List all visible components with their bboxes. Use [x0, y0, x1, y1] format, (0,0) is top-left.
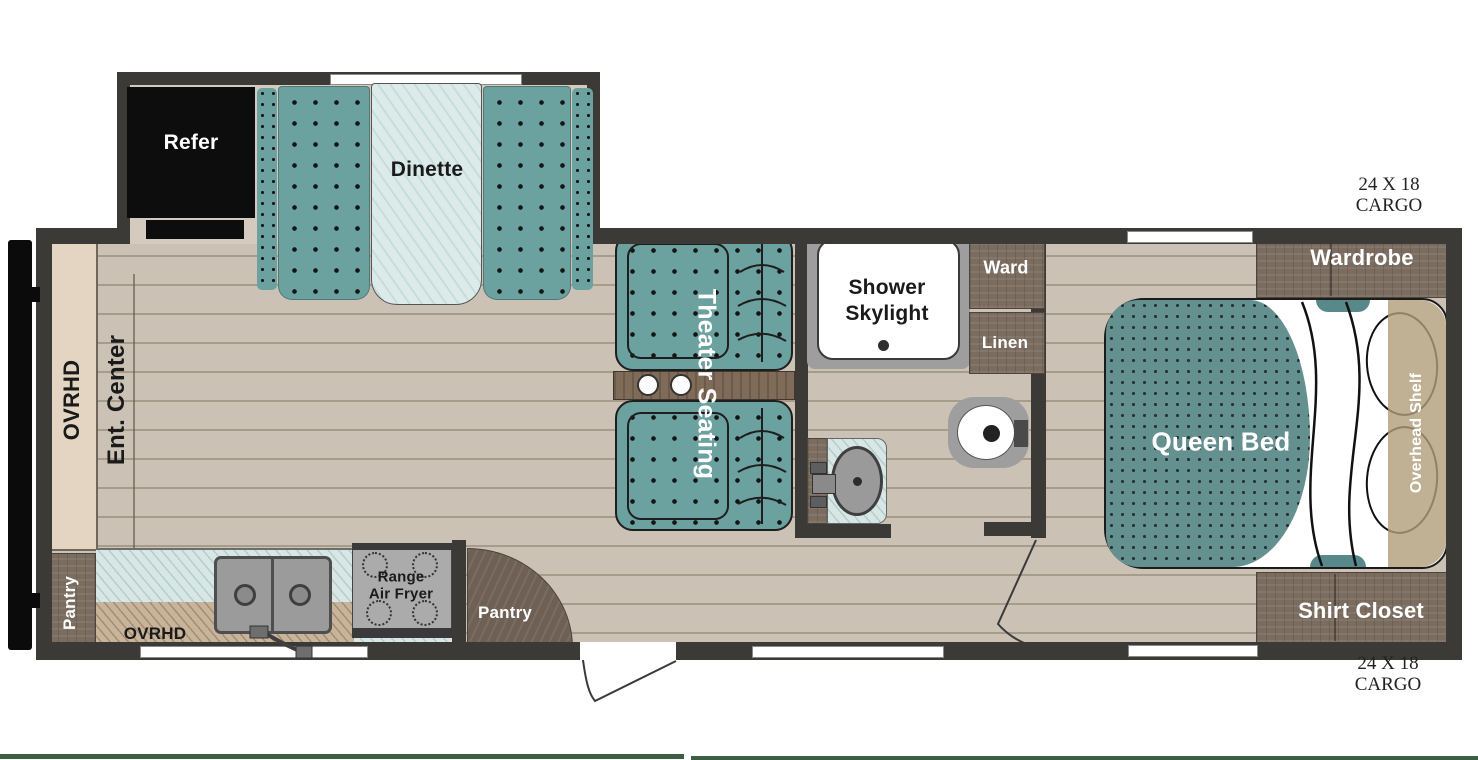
cargo-top-label: 24 X 18 CARGO [1334, 174, 1444, 216]
queen-bed-label: Queen Bed [1151, 427, 1290, 458]
bath-faucet [812, 474, 836, 494]
cargo-top-line2: CARGO [1334, 195, 1444, 216]
bath-return-wall [795, 524, 891, 538]
dinette-bench-right [483, 86, 571, 300]
ent-center-label: Ent. Center [103, 335, 131, 465]
dinette-bench-left [278, 86, 370, 300]
range-top-trim [352, 543, 452, 550]
front-cap [8, 240, 32, 650]
bedroom-door-stub [984, 522, 1046, 536]
bedroom-top-window [1127, 231, 1253, 243]
ent-center-platform-edge [133, 274, 135, 554]
cargo-top-line1: 24 X 18 [1334, 174, 1444, 195]
cargo-bottom-label: 24 X 18 CARGO [1333, 653, 1443, 695]
toilet-flush [983, 425, 1000, 442]
dinette-bench-edge-right [572, 88, 593, 290]
rv-floorplan: Refer Dinette OVRHD Ent. Center Pantry O… [0, 0, 1478, 760]
bed-headboard-top [1316, 300, 1370, 312]
bath-faucet-knob-2 [810, 496, 827, 508]
front-ovhd-label: OVRHD [59, 360, 85, 440]
corner-pantry-label: Pantry [478, 603, 532, 623]
cupholder-1 [637, 374, 659, 396]
hall-window [752, 646, 944, 658]
theater-label: Theater Seating [692, 289, 721, 480]
ward-label: Ward [983, 258, 1028, 279]
range-label-line2: Air Fryer [369, 586, 433, 603]
burner-4 [412, 600, 438, 626]
dinette-bench-edge-left [257, 88, 277, 290]
kitchen-ovhd-label: OVRHD [124, 624, 186, 644]
burner-3 [366, 600, 392, 626]
range-bottom-trim [352, 628, 452, 638]
shower-label-line1: Shower [848, 276, 925, 300]
right-wall [1446, 228, 1462, 658]
bath-faucet-knob-1 [810, 462, 827, 474]
dinette-label: Dinette [391, 158, 464, 182]
linen-label: Linen [982, 333, 1028, 353]
front-pantry-label: Pantry [60, 576, 80, 630]
kitchen-sink-drain-right [289, 584, 311, 606]
bed-headboard-bottom [1310, 555, 1366, 567]
range-label-line1: Range [378, 569, 425, 586]
kitchen-end-wall [452, 540, 466, 658]
shower-label-line2: Skylight [845, 302, 928, 326]
dinette-table [371, 83, 482, 305]
entry-door-swing [583, 660, 676, 701]
cupholder-2 [670, 374, 692, 396]
shirt-closet-label: Shirt Closet [1298, 598, 1424, 624]
bedroom-bottom-window [1128, 645, 1258, 657]
shower-drain [878, 340, 889, 351]
overhead-shelf-label: Overhead Shelf [1408, 373, 1426, 493]
kitchen-sink-divider [271, 559, 274, 631]
refer-label: Refer [164, 131, 219, 155]
cargo-bottom-line1: 24 X 18 [1333, 653, 1443, 674]
top-wall-right [600, 228, 1462, 244]
refrigerator-base [146, 220, 244, 239]
bottom-divider-right [691, 756, 1478, 760]
bath-sink-drain [853, 477, 862, 486]
wardrobe-label: Wardrobe [1310, 245, 1413, 271]
front-cap-mount-bottom [32, 593, 40, 608]
cargo-bottom-line2: CARGO [1333, 674, 1443, 695]
bottom-divider-left [0, 754, 684, 759]
front-cap-mount-top [32, 287, 40, 302]
kitchen-sink-drain-left [234, 584, 256, 606]
kitchen-window [140, 646, 368, 658]
toilet-tank [1014, 420, 1028, 447]
